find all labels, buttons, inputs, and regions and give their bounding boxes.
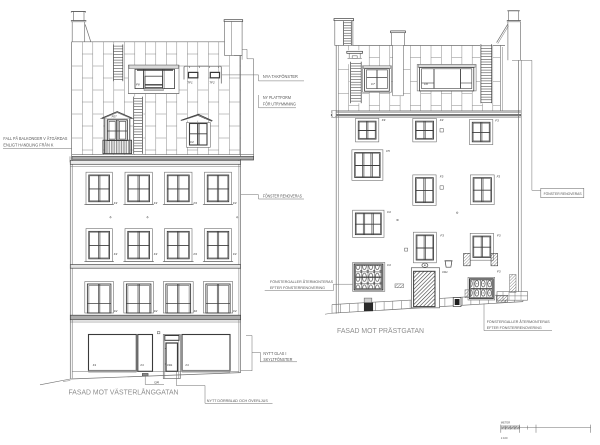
svg-text:F3: F3	[114, 201, 118, 205]
svg-text:F3: F3	[440, 118, 444, 122]
svg-text:F2: F2	[154, 309, 158, 313]
svg-text:F3: F3	[497, 270, 501, 274]
svg-text:F3: F3	[233, 201, 237, 205]
svg-text:FALL PÅ BALKONGER V ÅTGÄRDAS: FALL PÅ BALKONGER V ÅTGÄRDAS	[3, 136, 67, 141]
svg-text:F1: F1	[93, 363, 97, 367]
svg-text:FD1: FD1	[442, 270, 448, 274]
svg-text:NY PLATTFORM: NY PLATTFORM	[263, 95, 292, 100]
svg-text:FÖNSTER RENOVERAS: FÖNSTER RENOVERAS	[544, 191, 582, 196]
svg-text:F8: F8	[136, 83, 140, 87]
svg-text:F6: F6	[424, 82, 428, 86]
svg-text:F3: F3	[495, 119, 499, 123]
svg-text:F3: F3	[194, 252, 198, 256]
svg-text:F3: F3	[497, 234, 501, 238]
svg-text:FD1: FD1	[167, 363, 173, 367]
svg-text:F07: F07	[112, 114, 117, 118]
svg-text:GA: GA	[154, 381, 159, 385]
svg-text:F1: F1	[141, 363, 145, 367]
svg-text:F3: F3	[114, 252, 118, 256]
svg-text:NYTT GLAS I: NYTT GLAS I	[263, 351, 286, 356]
svg-text:NYA TAKFÖNSTER: NYA TAKFÖNSTER	[263, 74, 298, 79]
svg-text:F3: F3	[440, 234, 444, 238]
svg-text:TF1: TF1	[187, 80, 193, 84]
svg-text:EFTER FÖNSTERRENOVERING: EFTER FÖNSTERRENOVERING	[270, 285, 325, 290]
svg-text:EFTER FÖNSTERRENOVERING: EFTER FÖNSTERRENOVERING	[487, 325, 542, 330]
svg-text:F3: F3	[497, 175, 501, 179]
svg-text:F9: F9	[382, 118, 386, 122]
svg-text:FÖNSTER RENOVERAS: FÖNSTER RENOVERAS	[263, 194, 302, 199]
svg-text:F3: F3	[440, 175, 444, 179]
svg-text:F7: F7	[371, 82, 375, 86]
svg-text:F2: F2	[194, 309, 198, 313]
svg-text:ENLIGT HANDLING FRÅN K: ENLIGT HANDLING FRÅN K	[3, 143, 53, 148]
svg-text:F3: F3	[194, 201, 198, 205]
svg-text:FÖNSTERGALLER ÅTERMONTERAS: FÖNSTERGALLER ÅTERMONTERAS	[487, 319, 550, 324]
svg-text:F4: F4	[387, 210, 391, 214]
svg-text:SKYLTFÖNSTER: SKYLTFÖNSTER	[263, 357, 292, 362]
svg-text:F3: F3	[154, 201, 158, 205]
svg-text:METER: METER	[501, 420, 510, 424]
svg-text:NYTT DÖRRBLAD OCH ÖVERLJUS: NYTT DÖRRBLAD OCH ÖVERLJUS	[207, 398, 268, 403]
svg-text:FÖNSTERGALLER ÅTERMONTERAS: FÖNSTERGALLER ÅTERMONTERAS	[270, 279, 333, 284]
svg-text:FÖR UTRYMMNING: FÖR UTRYMMNING	[263, 102, 296, 107]
svg-text:F2: F2	[233, 309, 237, 313]
svg-text:F1: F1	[186, 363, 190, 367]
svg-text:F5: F5	[386, 149, 390, 153]
svg-text:F2: F2	[190, 140, 194, 144]
svg-text:F3: F3	[233, 252, 237, 256]
svg-text:F3: F3	[154, 252, 158, 256]
svg-text:TF2: TF2	[209, 80, 215, 84]
svg-text:F2: F2	[114, 309, 118, 313]
svg-text:FASAD MOT PRÄSTGATAN: FASAD MOT PRÄSTGATAN	[337, 326, 424, 335]
svg-text:F4: F4	[387, 263, 391, 267]
svg-text:FASAD MOT VÄSTERLÅNGGATAN: FASAD MOT VÄSTERLÅNGGATAN	[69, 388, 179, 397]
svg-text:1:100: 1:100	[501, 436, 508, 440]
